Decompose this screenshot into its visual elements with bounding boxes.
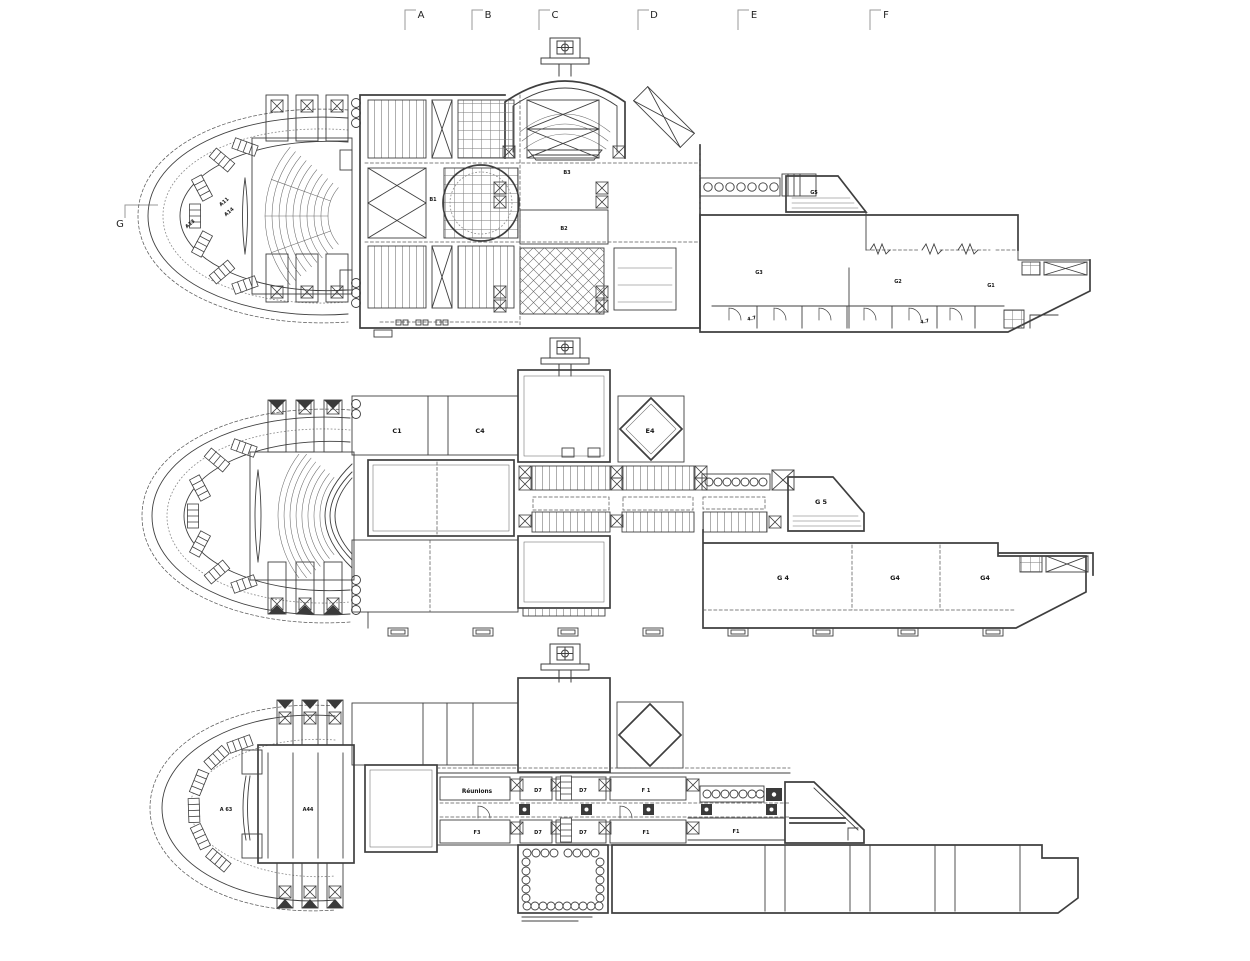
bottom-upper-square-hall [518, 678, 610, 772]
room-label: D7 [579, 788, 587, 794]
bottom-diagonal-gallery [700, 782, 864, 843]
room-label: C4 [475, 427, 485, 435]
room-label: A14 [223, 206, 236, 218]
top-stage-house: B1 B3 B2 [360, 95, 700, 337]
floor-plans-svg: A B C D E F G [0, 0, 1250, 961]
room-label: G2 [894, 279, 902, 285]
top-northeast-gallery [634, 87, 695, 148]
section-letter-g: G [116, 219, 124, 230]
plan-top: A11 A14 A13 [138, 38, 1090, 337]
room-label: C1 [392, 427, 402, 435]
section-letter-d: D [650, 10, 658, 21]
bottom-hall-a44: A44 [242, 700, 354, 908]
architectural-drawing-sheet: A B C D E F G [0, 0, 1250, 961]
top-flytower-turret [541, 38, 589, 76]
section-letter-a: A [418, 10, 425, 21]
room-label: 4.7 [747, 315, 757, 323]
bottom-flytower-turret [541, 644, 589, 682]
room-label: B3 [563, 170, 571, 176]
room-label: A11 [218, 196, 231, 208]
room-label: E4 [646, 427, 655, 435]
top-room-g5-wedge: G5 [786, 176, 866, 212]
room-label: D7 [534, 830, 542, 836]
room-label: G4 [980, 574, 990, 582]
plan-middle: C1 C4 E4 [142, 338, 1093, 636]
section-marker-g: G [116, 205, 158, 230]
top-right-wing: G5 G3 G2 G1 4.7 4.7 [700, 174, 1090, 332]
room-label: G3 [755, 270, 763, 276]
middle-room-g5-wedge: G 5 [788, 477, 864, 531]
room-label: B1 [429, 197, 437, 203]
section-marker-f: F [870, 10, 889, 30]
room-label: G5 [810, 190, 818, 196]
middle-corridor-bands [519, 466, 794, 532]
bottom-right-wing [612, 845, 1078, 913]
room-label: D7 [534, 788, 542, 794]
room-label: F1 [643, 830, 650, 836]
bottom-hall-fingers [277, 700, 343, 908]
room-label: Réunions [462, 788, 493, 795]
middle-room-e4: E4 [618, 396, 684, 462]
room-label: G4 [890, 574, 900, 582]
middle-upper-square-hall [518, 370, 610, 462]
middle-foundation-tabs [368, 612, 1003, 636]
top-organ-apse [503, 81, 625, 160]
bottom-meeting-corridor: Réunions D7 D7 F 1 F3 D7 D7 F1 F1 [437, 768, 790, 845]
middle-lower-square-hall [518, 536, 610, 616]
room-label: D7 [579, 830, 587, 836]
middle-rooms-c1-c4: C1 C4 [352, 396, 518, 455]
room-label: F1 [733, 829, 740, 835]
section-marker-c: C [539, 10, 559, 30]
middle-right-wing: G 4 G4 G4 [703, 530, 1093, 628]
section-letter-e: E [751, 10, 757, 21]
room-label: G1 [987, 283, 995, 289]
room-label: F3 [474, 830, 481, 836]
section-letter-f: F [883, 10, 889, 21]
room-label: 4.7 [920, 318, 930, 326]
plan-bottom: A 63 A44 [150, 644, 1078, 921]
top-auditorium-seating [243, 138, 353, 294]
room-label: F 1 [642, 788, 651, 794]
section-marker-d: D [638, 10, 658, 30]
room-label: G 5 [815, 498, 828, 506]
section-letter-b: B [485, 10, 492, 21]
section-letter-c: C [552, 10, 559, 21]
bottom-upper-rooms [352, 703, 518, 852]
section-marker-b: B [472, 10, 492, 30]
middle-foyer-horseshoe [142, 409, 350, 623]
section-marker-a: A [405, 10, 425, 30]
room-label: A 63 [220, 807, 233, 813]
room-label: A44 [303, 807, 314, 813]
section-marker-e: E [738, 10, 757, 30]
middle-stage-room [352, 460, 518, 612]
bottom-room-diamond [617, 702, 683, 768]
room-label: B2 [560, 226, 568, 232]
room-label: G 4 [777, 574, 790, 582]
bottom-courtyard [518, 845, 608, 921]
